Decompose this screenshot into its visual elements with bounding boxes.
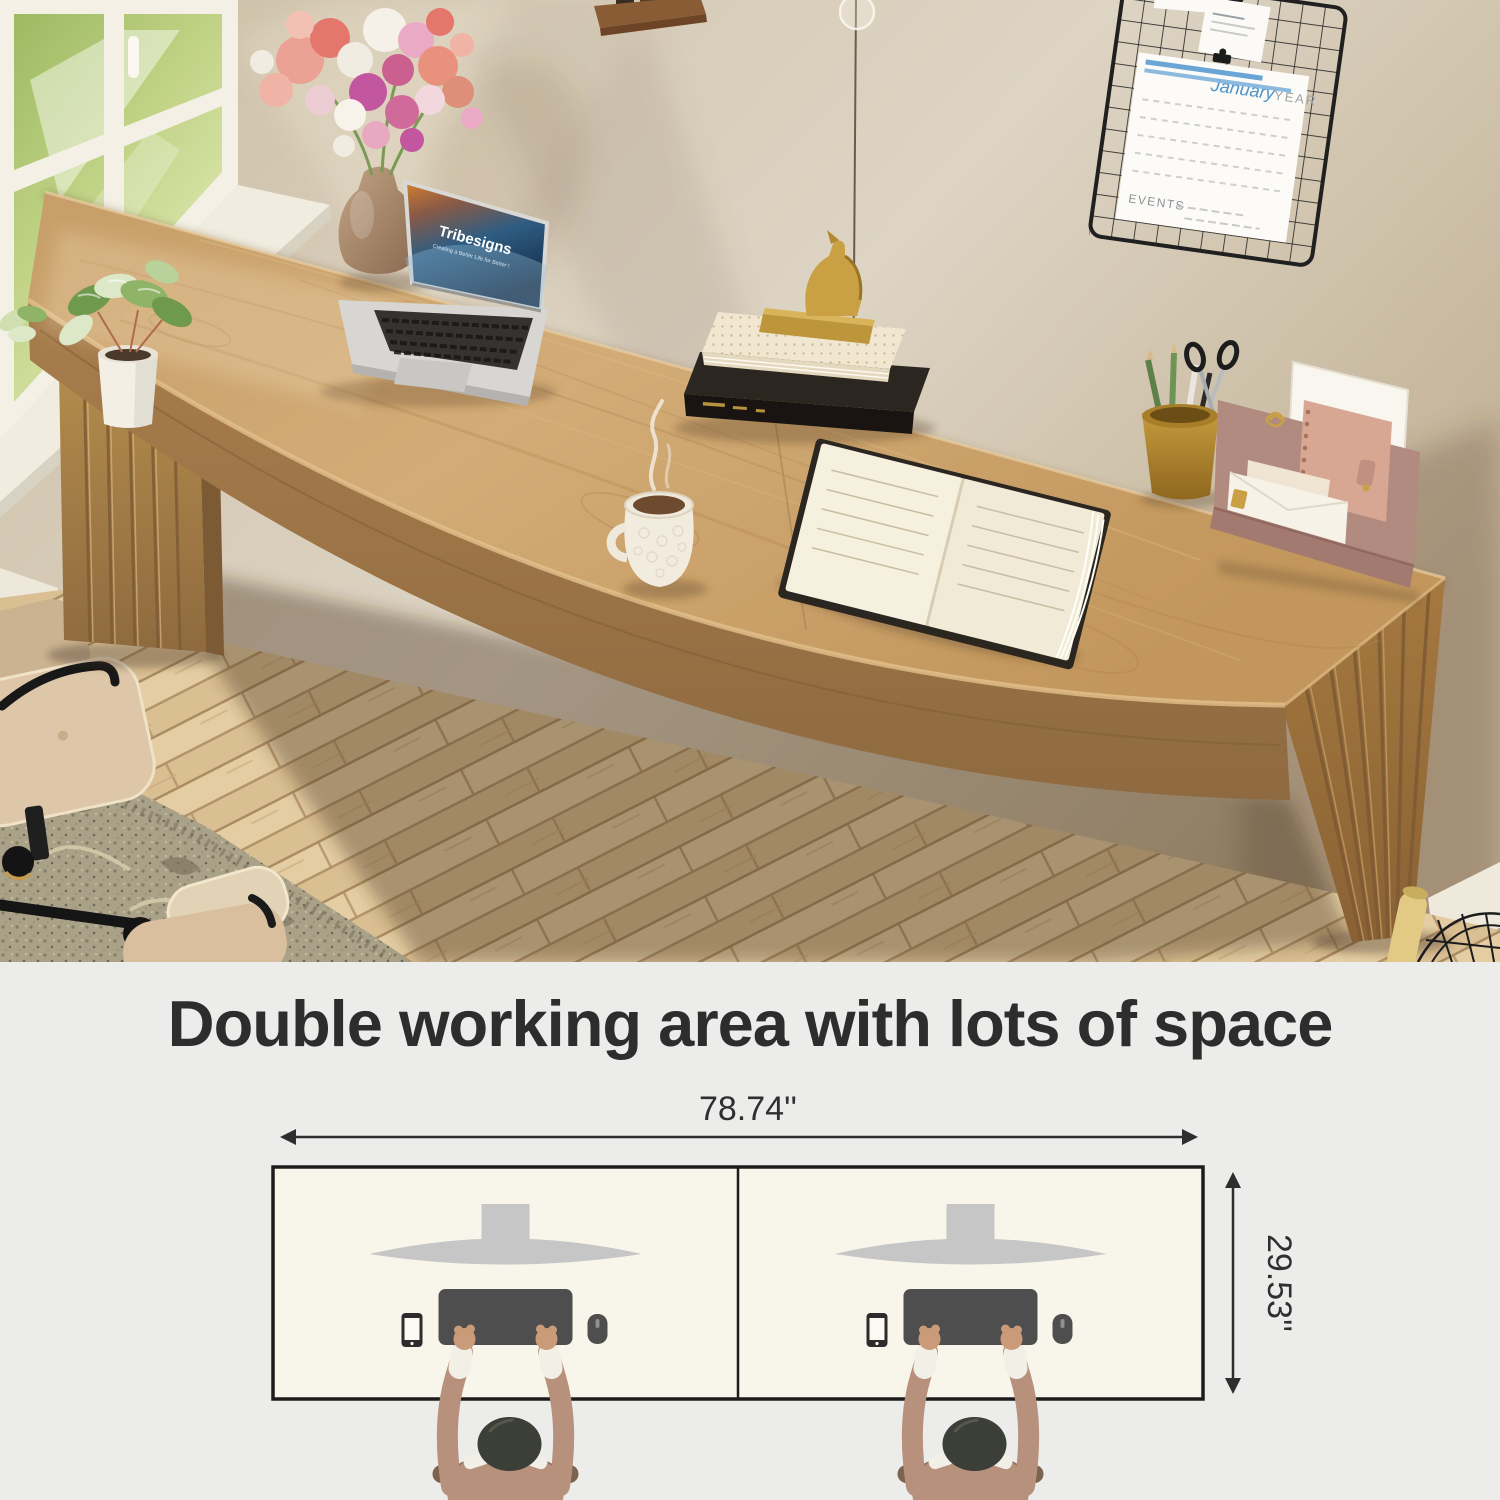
window-handle xyxy=(128,36,139,78)
light-bulb xyxy=(840,0,874,29)
product-listing-image: January YEAR EVENTS xyxy=(0,0,1500,1500)
arrow-head-left xyxy=(280,1129,296,1145)
width-dimension-label: 78.74'' xyxy=(699,1090,797,1128)
dimension-diagram: 78.74'' 29.53'' xyxy=(0,962,1500,1500)
arrow-head-down xyxy=(1225,1378,1241,1394)
depth-dimension-label: 29.53'' xyxy=(1260,1234,1298,1332)
depth-dimension: 29.53'' xyxy=(1225,1172,1298,1394)
hero-photo: January YEAR EVENTS xyxy=(0,0,1500,962)
info-panel: Double working area with lots of space xyxy=(0,962,1500,1500)
arrow-head-right xyxy=(1182,1129,1198,1145)
arrow-head-up xyxy=(1225,1172,1241,1188)
business-card xyxy=(1198,0,1271,63)
grid-memo-board: January YEAR EVENTS xyxy=(1089,0,1351,266)
width-dimension: 78.74'' xyxy=(280,1090,1198,1145)
